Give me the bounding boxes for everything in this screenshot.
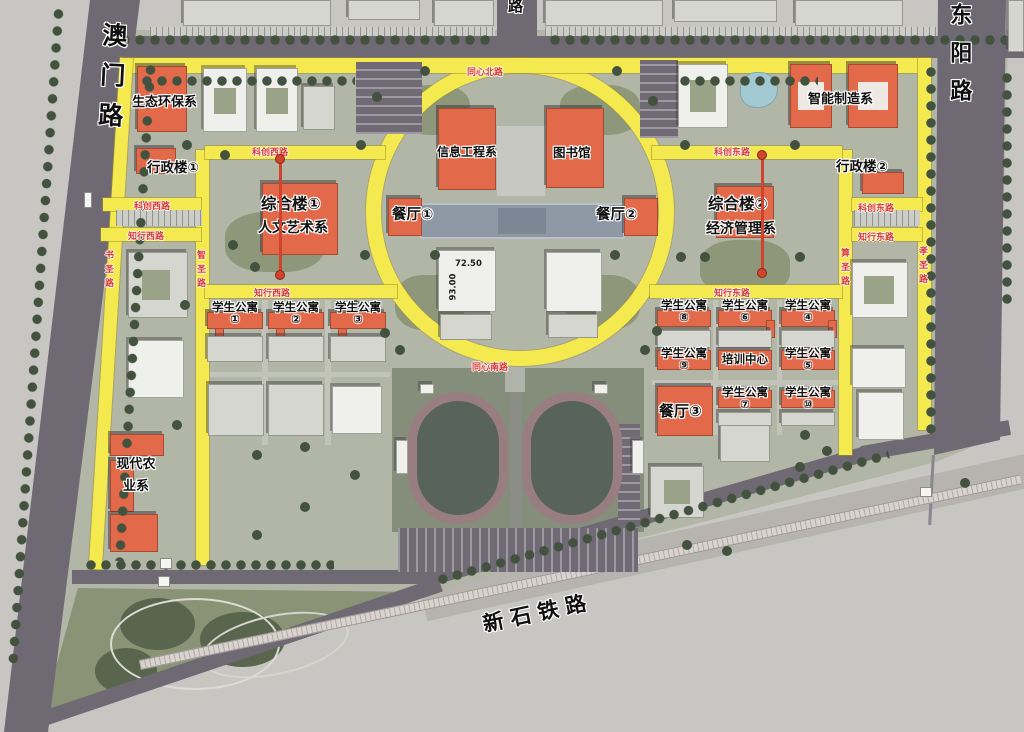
training-name: 培训中心: [717, 353, 773, 365]
offsite-building: [795, 0, 903, 26]
label-library: 图书馆: [553, 146, 591, 160]
east-block-building: [858, 392, 904, 440]
axis-node: [275, 270, 285, 280]
road-zhixing-west: [205, 285, 397, 298]
label-dorm-1: 学生公寓①: [207, 301, 263, 325]
running-track-east: [522, 392, 622, 524]
dorm-number: ⑩: [780, 398, 836, 410]
label-dorm-4: 学生公寓④: [780, 299, 836, 323]
offsite-building: [545, 0, 663, 26]
road-label-suansheng: 算圣路: [838, 248, 851, 290]
auditorium-west-wing: [440, 314, 492, 340]
label-economics: 经济管理系: [706, 222, 776, 237]
dorm-number: ⑥: [717, 311, 773, 323]
campus-master-plan-map: 澳门路 东阳路 路 新石铁路 同心北路 同心南路 科创西路 科创西路 知行西路 …: [0, 0, 1024, 732]
stand-building: [396, 440, 408, 474]
courtyard: [214, 88, 236, 114]
label-humanities: 人文艺术系: [258, 221, 328, 236]
dorm-number: ⑤: [780, 359, 836, 371]
small-building: [303, 86, 335, 130]
parking-lot-nw: [356, 62, 422, 134]
axis-node: [757, 150, 767, 160]
courtyard: [142, 270, 170, 300]
road-label-zhixing-east-2: 知行东路: [858, 230, 894, 243]
label-dorm-10: 学生公寓⑩: [780, 386, 836, 410]
gate-marker: [920, 487, 932, 497]
north-plaza: [497, 126, 545, 196]
auditorium-east-wing: [548, 314, 598, 338]
road-label-kechuang-east: 科创东路: [714, 145, 750, 158]
dorm-number: ③: [330, 313, 386, 325]
tree-row: [678, 74, 818, 87]
label-smart-mfg: 智能制造系: [808, 93, 873, 107]
label-canteen2: 餐厅②: [596, 208, 637, 224]
offsite-building: [674, 0, 777, 22]
stand-building: [594, 384, 608, 394]
label-agri: 现代农业系: [114, 454, 158, 498]
dorm-annex: [718, 330, 772, 348]
label-canteen3: 餐厅③: [659, 403, 702, 420]
tree-row: [140, 74, 355, 87]
stand-building: [420, 384, 434, 394]
offsite-building: [434, 0, 494, 26]
offsite-building: [183, 0, 331, 26]
gate-marker: [160, 558, 172, 569]
courtyard: [864, 276, 894, 304]
elevation-93-00: 93.00: [448, 274, 458, 301]
building-complex1: [262, 183, 338, 255]
stand-building: [632, 440, 644, 474]
tree-dots: [0, 0, 10, 10]
road-label-zhixing-west-2: 知行西路: [254, 286, 290, 299]
dorm-number: ④: [780, 311, 836, 323]
courtyard: [664, 480, 690, 504]
road-kechuang-west: [205, 146, 385, 159]
label-info-engineering: 信息工程系: [437, 146, 497, 159]
road-label-tongxin-north: 同心北路: [467, 65, 503, 78]
running-track-west: [408, 392, 508, 524]
dorm-annex: [207, 336, 263, 362]
west-lower-building: [208, 384, 264, 436]
label-dorm-7: 学生公寓⑦: [717, 386, 773, 410]
label-dorm-6: 学生公寓⑥: [717, 299, 773, 323]
dorm-number: ⑨: [656, 359, 712, 371]
dorm-number: ⑦: [717, 398, 773, 410]
axis-node: [275, 154, 285, 164]
road-label-aomen: 澳门路: [94, 21, 128, 142]
gate-marker: [84, 192, 92, 208]
offsite-building: [1008, 0, 1024, 52]
label-admin2: 行政楼②: [836, 160, 888, 175]
road-label-kechuang-east-2: 科创东路: [858, 201, 894, 214]
dorm-annex: [781, 412, 835, 426]
dorm-annex: [268, 336, 324, 362]
road-label-zhisheng: 智圣路: [194, 250, 207, 292]
west-lower-building: [268, 384, 324, 436]
east-block-building: [852, 348, 906, 388]
label-dorm-3: 学生公寓③: [330, 301, 386, 325]
se-building: [720, 424, 770, 462]
axis-west: [279, 160, 282, 276]
label-dorm-5: 学生公寓⑤: [780, 347, 836, 371]
axis-east: [761, 156, 764, 274]
label-canteen1: 餐厅①: [392, 208, 433, 224]
gate-marker: [158, 576, 170, 587]
auditorium-east: [546, 252, 602, 312]
parking-lot-ne: [640, 60, 678, 138]
road-label-dongyang: 东阳路: [946, 3, 970, 117]
courtyard: [266, 88, 288, 114]
building-admin2: [862, 172, 904, 194]
dorm-number: ②: [268, 313, 324, 325]
tree-row: [118, 33, 492, 47]
road-label-xiaosheng: 孝圣路: [916, 246, 929, 288]
stadium-divider-path: [510, 390, 522, 530]
dorm-annex: [330, 336, 386, 362]
parking-west: [116, 210, 202, 226]
road-south-west-segment: [72, 570, 432, 584]
tree-row: [548, 33, 1006, 47]
road-label-shusheng: 书圣路: [102, 250, 115, 292]
internal-path: [205, 372, 390, 377]
label-complex1: 综合楼①: [261, 196, 321, 213]
label-dorm-9: 学生公寓⑨: [656, 347, 712, 371]
building-agri: [110, 434, 164, 456]
dorm-annex: [718, 412, 772, 426]
elevation-72-50: 72.50: [455, 259, 482, 269]
tree-column: [1000, 70, 1013, 310]
dorm-number: ①: [207, 313, 263, 325]
road-suansheng: [839, 150, 852, 455]
label-admin1: 行政楼①: [147, 161, 199, 176]
label-dorm-2: 学生公寓②: [268, 301, 324, 325]
label-complex2: 综合楼②: [708, 196, 768, 213]
label-eco: 生态环保系: [132, 96, 197, 110]
axis-node: [757, 268, 767, 278]
label-dorm-8: 学生公寓⑧: [656, 299, 712, 323]
road-label-tongxin-south: 同心南路: [472, 360, 508, 373]
road-label-top-partial: 路: [508, 0, 523, 15]
road-label-kechuang-west-2: 科创西路: [134, 199, 170, 212]
label-training: 培训中心: [717, 353, 773, 365]
road-label-zhixing-west: 知行西路: [128, 229, 164, 242]
tree-row: [84, 558, 334, 570]
offsite-building: [348, 0, 420, 20]
west-lower-building: [332, 386, 382, 434]
dorm-number: ⑧: [656, 311, 712, 323]
central-plaza-pool: [498, 208, 546, 234]
